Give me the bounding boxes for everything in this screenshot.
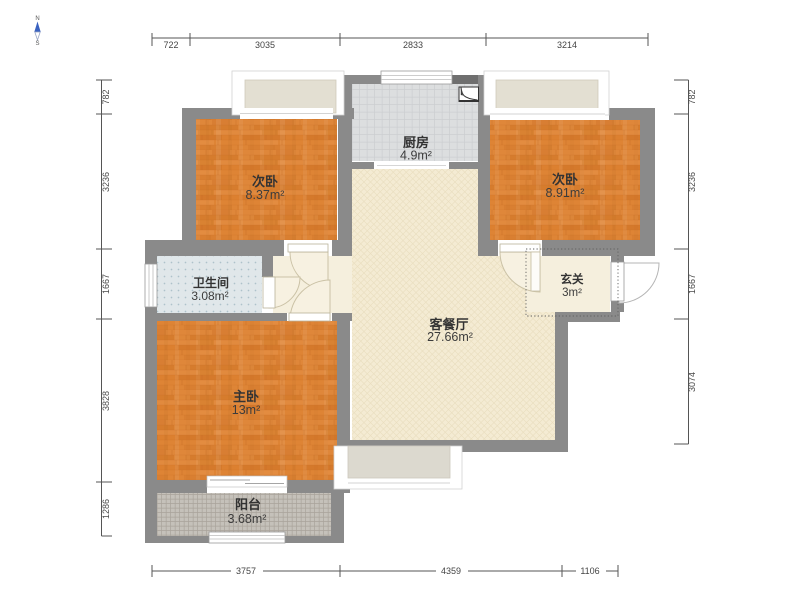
svg-text:次卧: 次卧 [552, 172, 578, 187]
svg-text:13m²: 13m² [232, 403, 260, 417]
svg-text:782: 782 [101, 89, 111, 104]
svg-text:4.9m²: 4.9m² [400, 149, 432, 163]
svg-text:4359: 4359 [441, 566, 461, 576]
svg-text:3074: 3074 [687, 372, 697, 392]
svg-text:主卧: 主卧 [233, 389, 259, 404]
svg-text:8.91m²: 8.91m² [546, 186, 585, 200]
svg-text:1667: 1667 [687, 274, 697, 294]
svg-text:1106: 1106 [580, 566, 599, 576]
svg-text:3m²: 3m² [562, 287, 582, 299]
svg-text:27.66m²: 27.66m² [427, 330, 473, 344]
svg-text:阳台: 阳台 [235, 497, 261, 512]
svg-text:N: N [35, 16, 39, 22]
svg-text:3236: 3236 [101, 172, 111, 192]
svg-text:1667: 1667 [101, 274, 111, 294]
svg-text:3214: 3214 [557, 40, 577, 50]
svg-text:3.08m²: 3.08m² [191, 289, 228, 303]
svg-text:玄关: 玄关 [561, 272, 584, 286]
svg-text:卫生间: 卫生间 [193, 275, 229, 290]
svg-text:1286: 1286 [101, 499, 111, 519]
svg-text:次卧: 次卧 [252, 174, 278, 189]
svg-text:722: 722 [163, 40, 178, 50]
svg-text:2833: 2833 [403, 40, 423, 50]
svg-text:8.37m²: 8.37m² [246, 188, 285, 202]
svg-text:3.68m²: 3.68m² [228, 512, 267, 526]
svg-text:S: S [35, 41, 39, 47]
svg-text:3236: 3236 [687, 172, 697, 192]
svg-text:3757: 3757 [236, 566, 256, 576]
svg-text:3035: 3035 [255, 40, 275, 50]
svg-text:782: 782 [687, 89, 697, 104]
svg-text:3828: 3828 [101, 391, 111, 411]
